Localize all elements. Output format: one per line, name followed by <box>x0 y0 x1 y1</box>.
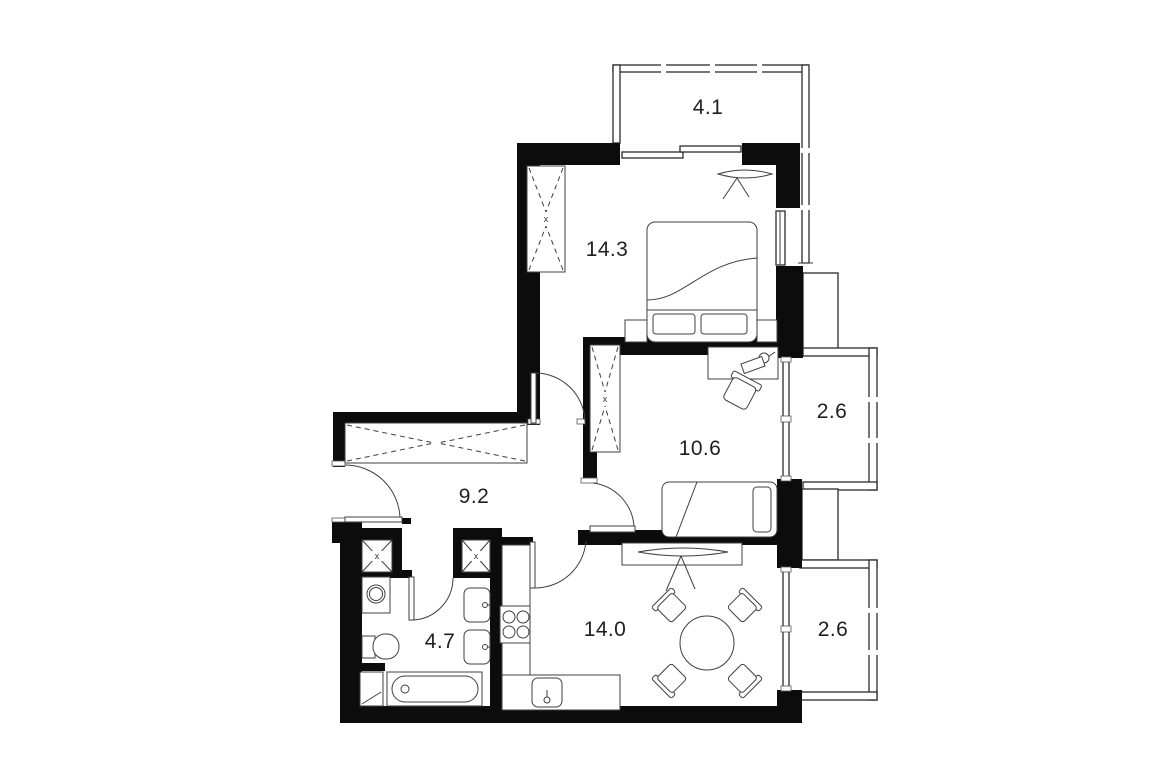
entry-door <box>345 465 402 522</box>
single-bed <box>662 482 777 537</box>
kitchen-sink <box>532 678 562 707</box>
nightstand-right <box>757 320 777 342</box>
ac-shaft-lower <box>802 489 838 560</box>
balcony-right-lower <box>800 560 878 700</box>
small-bedroom-wardrobe: x <box>590 345 620 452</box>
stove <box>500 606 530 643</box>
dining-chair-se <box>725 661 762 698</box>
vent-shaft-1: x <box>362 540 392 572</box>
double-bed <box>647 222 757 342</box>
dining-chair-sw <box>651 661 688 698</box>
kitchen-door <box>530 541 586 588</box>
wardrobe-marker: x <box>544 214 549 224</box>
bedroom-wardrobe: x <box>527 166 565 272</box>
balcony-right-upper <box>803 348 878 490</box>
kitchen-tv-stand <box>622 543 742 591</box>
shaft-marker: x <box>474 551 479 561</box>
shaft-marker: x <box>375 551 380 561</box>
washing-machine <box>362 577 390 613</box>
dining-chair-nw <box>651 587 688 624</box>
dining-chair-ne <box>725 587 762 624</box>
wardrobe-marker: x <box>603 394 608 404</box>
kitchen-balcony-window <box>781 567 791 691</box>
nightstand-left <box>625 320 647 342</box>
dining-table <box>680 616 734 670</box>
floor-plan-drawing: x x x <box>0 0 1176 770</box>
bathtub <box>387 672 482 706</box>
vent-shaft-2: x <box>462 540 490 572</box>
bath-sink-2 <box>464 630 490 664</box>
bath-cabinet <box>360 672 383 706</box>
bedroom-right-window <box>776 211 785 265</box>
ac-shaft-upper <box>803 273 838 350</box>
small-bedroom-balcony-window <box>781 357 791 481</box>
bedroom-tv <box>718 170 772 199</box>
hall-closet <box>345 423 527 463</box>
floor-plan-page: x x x <box>0 0 1176 770</box>
bathroom-door <box>409 577 453 620</box>
small-bedroom-door <box>590 483 635 532</box>
toilet <box>362 634 399 659</box>
bedroom-balcony-window <box>622 146 741 158</box>
bath-sink-1 <box>464 588 490 622</box>
desk <box>708 347 778 379</box>
